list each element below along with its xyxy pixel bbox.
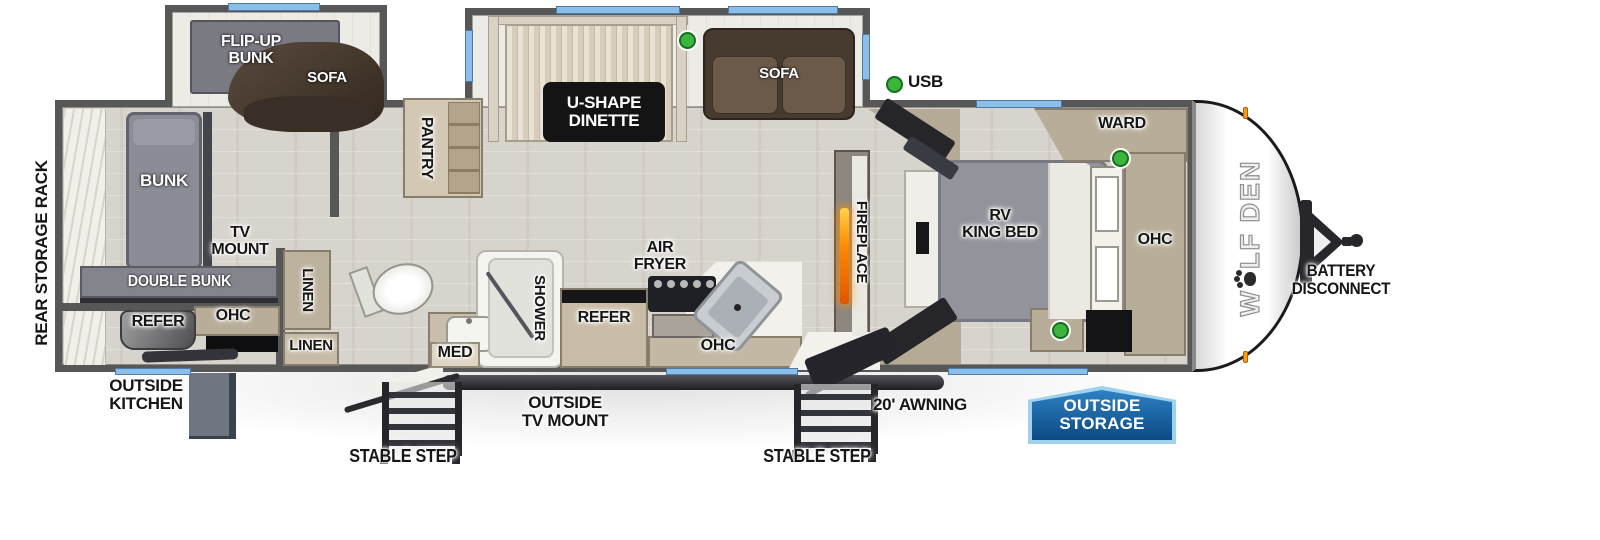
fireplace-label-wrap: FIREPLACE xyxy=(851,177,871,307)
marker-light-top-icon xyxy=(1243,107,1248,119)
sofa-bunkroom-label: SOFA xyxy=(292,70,362,86)
ohc-rear-label: OHC xyxy=(200,308,266,325)
stable-step-left-label: STABLE STEP xyxy=(343,447,464,466)
floorplan-canvas: WLF DEN BATTERY DISCONNECT REAR STORAGE … xyxy=(0,0,1600,540)
shower-label: SHOWER xyxy=(531,275,547,341)
rear-wall-storage xyxy=(64,109,106,365)
refer-rear-label: REFER xyxy=(118,314,198,331)
sofa-living-label: SOFA xyxy=(745,66,813,82)
window-rear-bottom xyxy=(115,368,191,375)
bunk-pillow xyxy=(133,119,195,145)
window-dinette-top-2 xyxy=(728,6,838,14)
double-bunk-label: DOUBLE BUNK xyxy=(127,274,230,291)
window-bedroom-top xyxy=(976,100,1062,108)
window-bedroom-bottom xyxy=(948,368,1088,375)
pantry-label-wrap: PANTRY xyxy=(416,100,436,196)
refer-kitchen-label: REFER xyxy=(560,310,648,327)
paw-print-icon xyxy=(1244,272,1256,286)
dinette-indicator-dot-icon xyxy=(679,32,696,49)
rear-storage-rack-label: REAR STORAGE RACK xyxy=(32,143,52,363)
bedroom-storage-block xyxy=(1086,310,1132,352)
battery-disconnect-label: BATTERY DISCONNECT xyxy=(1288,262,1394,298)
linen-horizontal-label: LINEN xyxy=(281,338,341,354)
window-kitchen-bottom xyxy=(666,368,798,375)
u-shape-dinette-label: U-SHAPE DINETTE xyxy=(567,94,641,130)
logo-text-w: W xyxy=(1235,289,1266,316)
linen-vertical-label-wrap: LINEN xyxy=(297,245,317,335)
hitch-a-frame-cutout xyxy=(1314,227,1331,257)
flip-up-bunk-label: FLIP-UP BUNK xyxy=(196,34,306,68)
sofa-bunkroom-seat xyxy=(244,96,372,132)
wolf-den-logo: WLF DEN xyxy=(1236,128,1264,348)
rv-king-bed-label: RV KING BED xyxy=(930,208,1070,242)
stove-burners-icon xyxy=(654,280,662,288)
fireplace-flame xyxy=(840,208,849,304)
window-dinette-right xyxy=(862,34,870,80)
stable-step-right-label: STABLE STEP xyxy=(757,447,878,466)
outside-storage-label: OUTSIDE STORAGE xyxy=(1059,397,1144,433)
ohc-cabinet-bedroom xyxy=(1124,152,1186,356)
outside-storage-badge-inner: OUTSIDE STORAGE xyxy=(1032,390,1172,440)
bed-shelf-lower xyxy=(1095,246,1119,302)
bedroom-indicator-dot-bottom-icon xyxy=(1052,322,1069,339)
window-dinette-left xyxy=(465,30,473,82)
dinette-label-box: U-SHAPE DINETTE xyxy=(543,82,665,142)
entry-steps-left xyxy=(382,382,462,456)
logo-text-lfden: LF DEN xyxy=(1235,160,1266,270)
awning-label: 20' AWNING xyxy=(862,396,978,414)
double-bunk: DOUBLE BUNK xyxy=(80,266,278,298)
outside-kitchen-door xyxy=(189,373,236,439)
double-bunk-shadow xyxy=(80,298,278,303)
window-bunk-slide xyxy=(228,3,320,11)
fireplace-label: FIREPLACE xyxy=(853,201,869,283)
window-dinette-top-1 xyxy=(556,6,680,14)
ohc-bedroom-label: OHC xyxy=(1122,232,1188,249)
pantry-drawers xyxy=(448,102,480,194)
air-fryer-label: AIR FRYER xyxy=(622,240,698,274)
kitchen-refer-top xyxy=(562,290,646,303)
bed-shelf-upper xyxy=(1095,176,1119,232)
entry-steps-right xyxy=(794,384,878,454)
usb-indicator-dot-icon xyxy=(886,76,903,93)
ward-label: WARD xyxy=(1080,116,1164,133)
bedroom-dresser-tv xyxy=(916,222,929,254)
bath-faucet-icon xyxy=(466,318,472,324)
pantry-label: PANTRY xyxy=(418,117,435,179)
ohc-kitchen-label: OHC xyxy=(686,338,750,355)
dinette-bench-left xyxy=(488,16,499,142)
bedroom-indicator-dot-top-icon xyxy=(1112,150,1129,167)
linen-vertical-label: LINEN xyxy=(299,268,315,312)
outside-tv-mount-label: OUTSIDE TV MOUNT xyxy=(492,394,638,430)
shower-label-wrap: SHOWER xyxy=(529,253,549,363)
tv-mount-label: TV MOUNT xyxy=(196,225,284,259)
hitch-ball-coupler xyxy=(1350,234,1363,247)
outside-kitchen-label: OUTSIDE KITCHEN xyxy=(98,377,194,413)
kitchen-sink-drain-icon xyxy=(734,304,741,311)
usb-label: USB xyxy=(908,73,954,91)
rear-storage-rack-text: REAR STORAGE RACK xyxy=(33,160,51,345)
bunk-label: BUNK xyxy=(126,172,202,190)
med-label: MED xyxy=(428,345,482,362)
marker-light-bottom-icon xyxy=(1243,351,1248,363)
